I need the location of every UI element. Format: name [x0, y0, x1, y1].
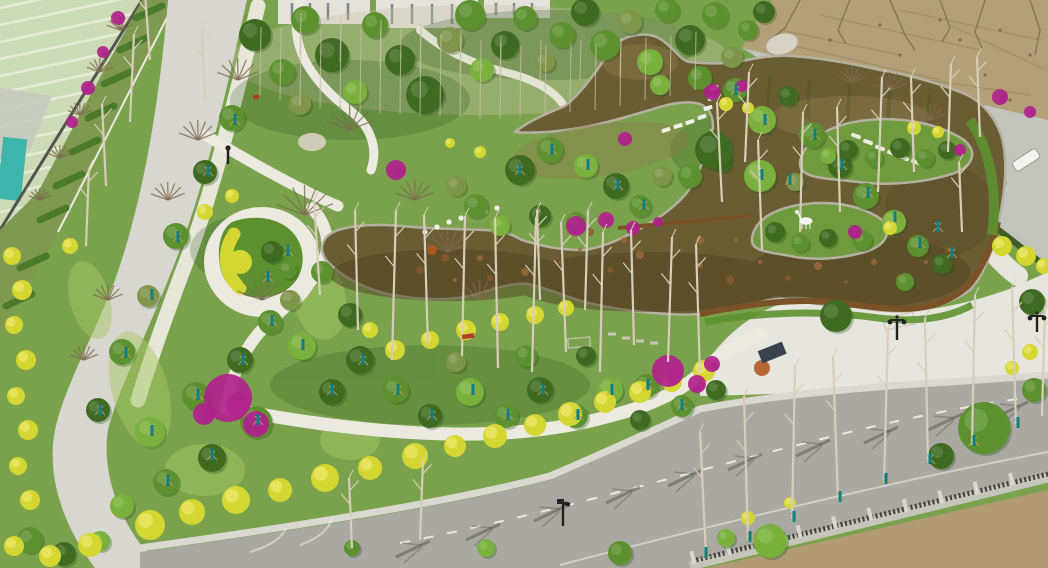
garden-stone	[434, 224, 439, 229]
yellow-shrub	[719, 97, 733, 111]
magenta-flower-patch	[1024, 106, 1036, 118]
yellow-shrub	[385, 340, 405, 360]
leaf-litter	[844, 280, 848, 284]
leaf-litter	[785, 275, 791, 281]
leaf-litter	[521, 268, 529, 276]
leaf-litter	[416, 266, 424, 274]
yellow-shrub	[907, 121, 921, 135]
leaf-litter	[658, 238, 662, 242]
yellow-shrub	[39, 545, 61, 567]
leaf-litter	[924, 260, 928, 264]
yellow-shrub	[491, 313, 509, 331]
yellow-shrub	[524, 414, 546, 436]
yellow-shrub	[5, 316, 23, 334]
yellow-shrub	[1005, 361, 1019, 375]
yellow-shrub	[3, 247, 21, 265]
leaf-litter	[621, 237, 627, 243]
magenta-flower-patch	[97, 46, 109, 58]
orange-shrub	[427, 245, 437, 255]
field-debris	[878, 23, 881, 26]
yellow-shrub	[402, 443, 428, 469]
leaf-litter	[871, 259, 877, 265]
magenta-flower-patch	[566, 216, 586, 236]
red-planter	[253, 95, 259, 99]
shore-stone	[608, 333, 616, 336]
yellow-shrub	[4, 536, 24, 556]
pale-rock	[298, 133, 326, 151]
yellow-shrub	[421, 331, 439, 349]
leaf-litter	[636, 251, 644, 259]
field-debris	[1008, 98, 1011, 101]
shore-stone	[650, 342, 658, 345]
leaf-litter	[814, 262, 822, 270]
magenta-flower-patch	[618, 132, 632, 146]
yellow-shrub	[558, 300, 574, 316]
yellow-shrub	[784, 497, 796, 509]
leaf-litter	[477, 255, 483, 261]
yellow-shrub	[268, 478, 292, 502]
bed-yellow-patch	[228, 250, 252, 274]
yellow-shrub	[883, 221, 897, 235]
yellow-shrub	[7, 387, 25, 405]
leaf-litter	[441, 254, 449, 262]
magenta-flower-patch	[193, 403, 215, 425]
yellow-shrub	[16, 350, 36, 370]
field-debris	[1028, 53, 1031, 56]
magenta-flower-patch	[243, 411, 269, 437]
teardrop-garden-bed	[204, 207, 320, 317]
shore-stone	[622, 337, 630, 340]
yellow-shrub	[311, 464, 339, 492]
yellow-shrub	[62, 238, 78, 254]
park-scene	[0, 0, 1048, 568]
garden-stone	[494, 205, 499, 210]
magenta-flower-patch	[704, 84, 720, 100]
yellow-shrub	[20, 490, 40, 510]
garden-stone	[446, 219, 451, 224]
leaf-litter	[578, 248, 582, 252]
magenta-flower-patch	[653, 217, 663, 227]
magenta-flower-patch	[66, 116, 78, 128]
leaf-litter	[453, 278, 457, 282]
field-debris	[828, 38, 831, 41]
yellow-shrub	[992, 236, 1012, 256]
garden-stone	[458, 215, 463, 220]
aerial-park-photograph	[0, 0, 1048, 568]
yellow-shrub	[444, 435, 466, 457]
magenta-flower-patch	[992, 89, 1008, 105]
leaf-litter	[734, 238, 738, 242]
yellow-shrub	[445, 138, 455, 148]
field-debris	[998, 28, 1001, 31]
yellow-shrub	[197, 204, 213, 220]
field-debris	[938, 18, 941, 21]
yellow-shrub	[9, 457, 27, 475]
magenta-flower-patch	[111, 11, 125, 25]
yellow-shrub	[362, 322, 378, 338]
leaf-litter	[696, 236, 704, 244]
magenta-flower-patch	[736, 80, 748, 92]
magenta-flower-patch	[848, 225, 862, 239]
leaf-litter	[726, 276, 734, 284]
magenta-flower-patch	[81, 81, 95, 95]
magenta-flower-patch	[704, 356, 720, 372]
yellow-shrub	[225, 189, 239, 203]
yellow-shrub	[12, 280, 32, 300]
leaf-litter	[607, 267, 613, 273]
leaf-litter	[697, 262, 703, 268]
yellow-shrub	[483, 424, 507, 448]
yellow-shrub	[526, 306, 544, 324]
leaf-litter	[487, 275, 493, 281]
field-debris	[958, 38, 961, 41]
yellow-shrub	[932, 126, 944, 138]
yellow-shrub	[179, 499, 205, 525]
yellow-shrub	[135, 510, 165, 540]
yellow-shrub	[358, 456, 382, 480]
yellow-shrub	[18, 420, 38, 440]
field-debris	[983, 73, 986, 76]
field-debris	[898, 53, 901, 56]
yellow-shrub	[78, 533, 102, 557]
magenta-flower-patch	[626, 221, 640, 235]
orange-shrub	[754, 360, 770, 376]
yellow-shrub	[222, 486, 250, 514]
magenta-flower-patch	[688, 375, 706, 393]
magenta-flower-patch	[954, 144, 966, 156]
shore-stone	[636, 340, 644, 343]
yellow-shrub	[474, 146, 486, 158]
magenta-flower-patch	[386, 160, 406, 180]
leaf-litter	[758, 260, 762, 264]
yellow-shrub	[1016, 246, 1036, 266]
yellow-shrub	[1022, 344, 1038, 360]
